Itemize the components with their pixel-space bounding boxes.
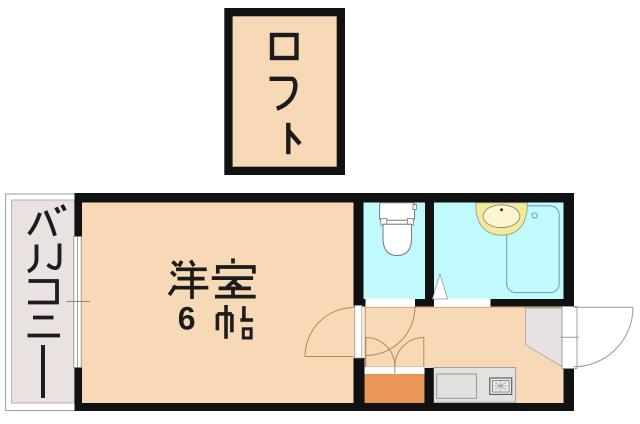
svg-text:6: 6 xyxy=(178,301,196,337)
